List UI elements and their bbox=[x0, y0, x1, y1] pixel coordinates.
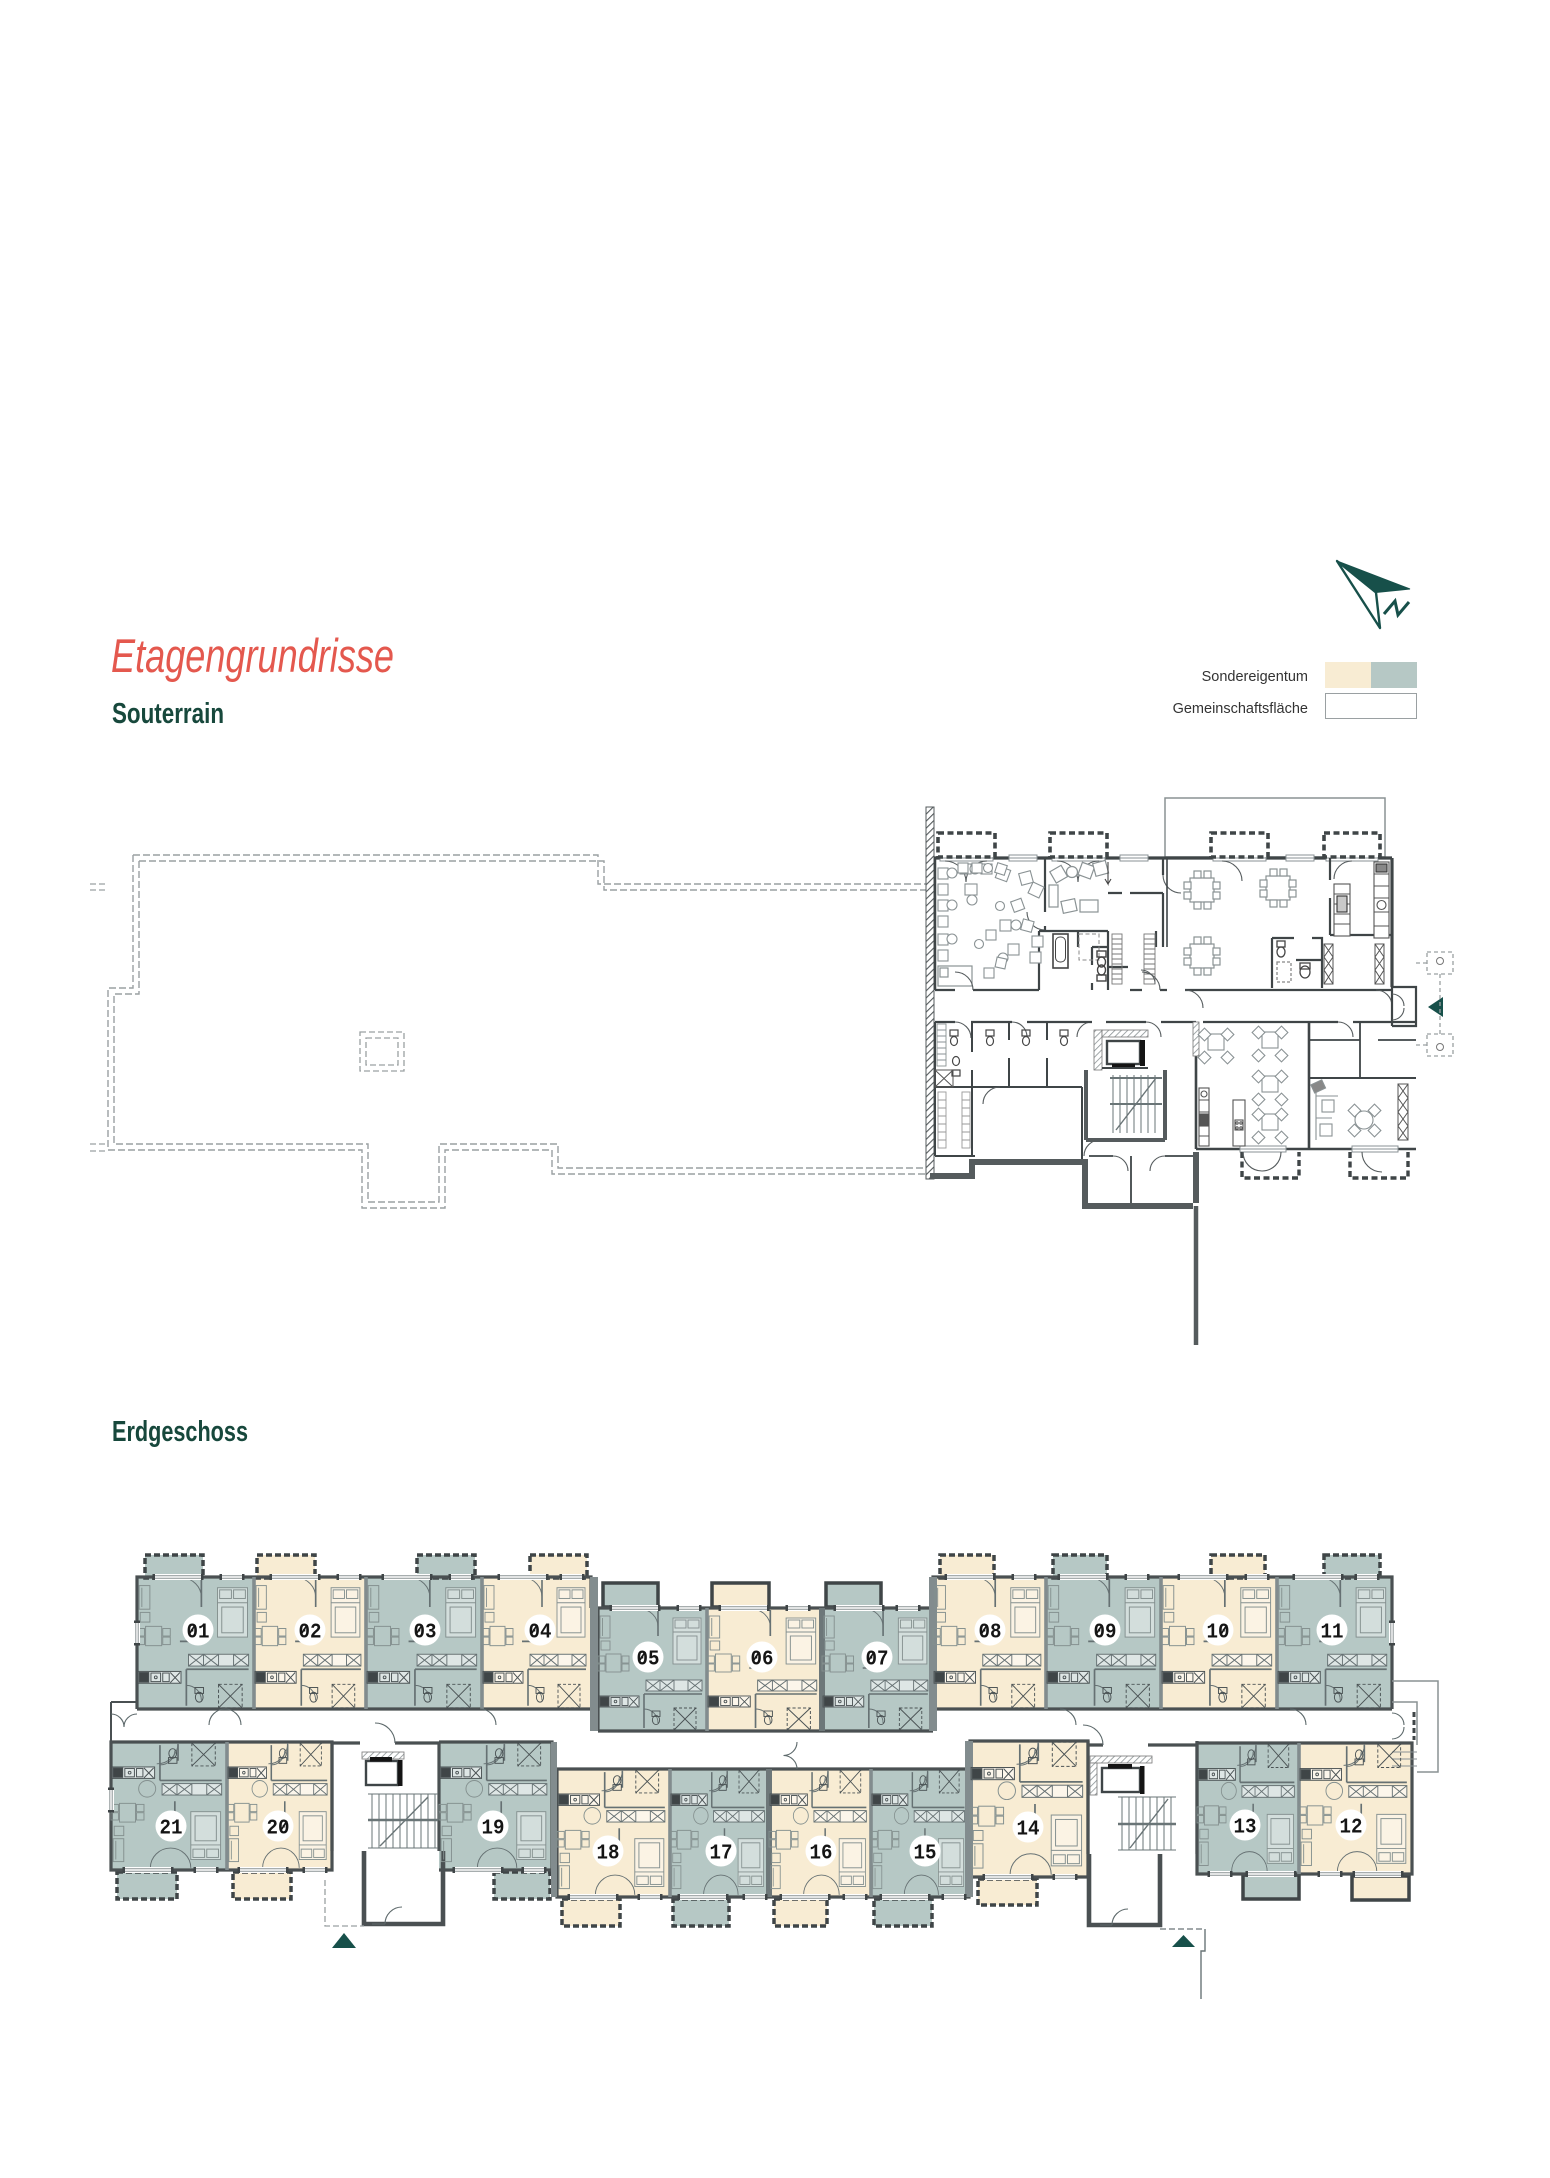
svg-text:20: 20 bbox=[267, 1817, 290, 1841]
svg-text:Erdgeschoss: Erdgeschoss bbox=[112, 1416, 248, 1448]
svg-text:Souterrain: Souterrain bbox=[112, 698, 224, 730]
svg-text:Etagengrundrisse: Etagengrundrisse bbox=[111, 629, 394, 682]
svg-text:14: 14 bbox=[1017, 1818, 1040, 1842]
svg-text:18: 18 bbox=[597, 1842, 620, 1866]
svg-text:Sondereigentum: Sondereigentum bbox=[1202, 669, 1308, 685]
svg-text:12: 12 bbox=[1340, 1816, 1363, 1840]
svg-text:21: 21 bbox=[160, 1817, 183, 1841]
svg-text:15: 15 bbox=[914, 1842, 937, 1866]
svg-text:Gemeinschaftsfläche: Gemeinschaftsfläche bbox=[1173, 701, 1308, 717]
svg-text:10: 10 bbox=[1207, 1621, 1230, 1645]
svg-text:19: 19 bbox=[482, 1817, 505, 1841]
svg-text:11: 11 bbox=[1321, 1621, 1344, 1645]
svg-text:13: 13 bbox=[1234, 1816, 1257, 1840]
svg-text:16: 16 bbox=[810, 1842, 833, 1866]
svg-text:17: 17 bbox=[710, 1842, 733, 1866]
